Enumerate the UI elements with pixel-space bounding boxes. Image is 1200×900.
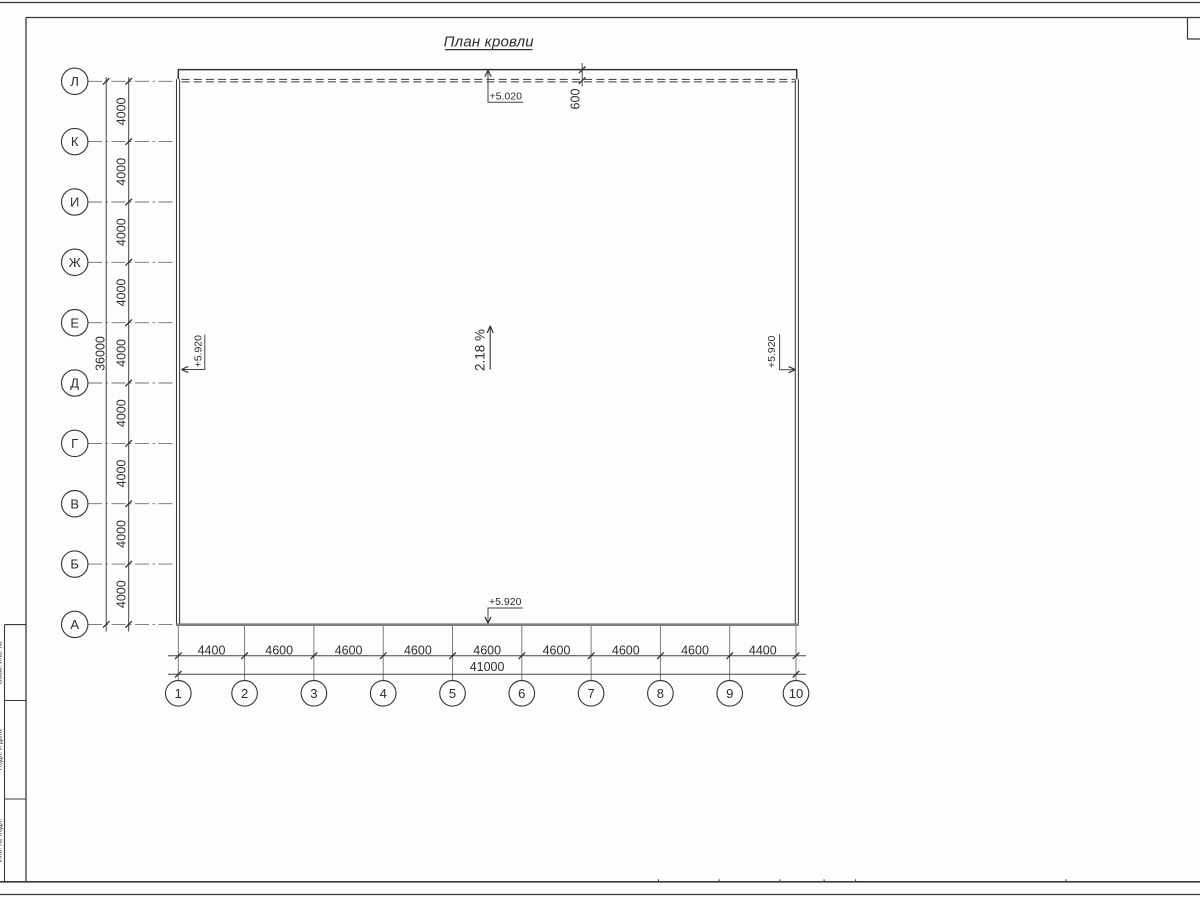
svg-text:7: 7 [587, 686, 594, 701]
svg-text:+5.920: +5.920 [192, 335, 204, 368]
svg-text:4600: 4600 [543, 643, 571, 657]
svg-text:6: 6 [518, 686, 525, 701]
svg-text:Б: Б [70, 557, 79, 572]
svg-text:4600: 4600 [473, 643, 501, 657]
svg-text:4000: 4000 [115, 520, 129, 548]
svg-text:4600: 4600 [265, 643, 293, 657]
svg-text:36000: 36000 [93, 336, 107, 371]
svg-text:И: И [70, 195, 79, 210]
svg-text:4000: 4000 [115, 339, 129, 367]
svg-text:А: А [70, 617, 79, 632]
svg-text:4600: 4600 [335, 643, 363, 657]
svg-text:Инв. № подл.: Инв. № подл. [0, 819, 3, 863]
svg-text:Взам. инв. №: Взам. инв. № [0, 641, 3, 684]
svg-text:Подп. и дата: Подп. и дата [0, 729, 3, 770]
svg-text:+5.920: +5.920 [766, 335, 778, 368]
svg-text:4000: 4000 [115, 158, 129, 186]
svg-text:2: 2 [241, 686, 248, 701]
svg-text:4400: 4400 [198, 643, 226, 657]
svg-text:8: 8 [657, 686, 664, 701]
svg-text:+5.020: +5.020 [490, 90, 523, 102]
svg-text:2.18 %: 2.18 % [473, 329, 488, 371]
svg-text:В: В [70, 496, 79, 511]
svg-text:К: К [71, 134, 79, 149]
svg-text:4600: 4600 [404, 643, 432, 657]
svg-text:4000: 4000 [115, 460, 129, 488]
svg-text:4600: 4600 [681, 643, 709, 657]
svg-text:Л: Л [70, 74, 79, 89]
svg-text:План кровли: План кровли [444, 33, 535, 50]
svg-text:4600: 4600 [612, 643, 640, 657]
svg-text:Д: Д [70, 376, 79, 391]
svg-text:Е: Е [70, 315, 79, 330]
svg-text:5: 5 [449, 686, 456, 701]
svg-text:4000: 4000 [115, 399, 129, 427]
svg-text:4: 4 [380, 686, 387, 701]
svg-text:+5.920: +5.920 [489, 596, 522, 608]
svg-text:41000: 41000 [470, 660, 505, 674]
svg-text:3: 3 [310, 686, 317, 701]
svg-text:4000: 4000 [115, 218, 129, 246]
svg-text:Ж: Ж [69, 255, 81, 270]
svg-text:4400: 4400 [749, 643, 777, 657]
svg-text:4000: 4000 [115, 279, 129, 307]
svg-text:600: 600 [569, 89, 583, 110]
svg-text:4000: 4000 [115, 580, 129, 608]
svg-text:Г: Г [71, 436, 78, 451]
svg-text:9: 9 [726, 686, 733, 701]
svg-text:10: 10 [789, 686, 803, 701]
svg-text:1: 1 [175, 686, 182, 701]
svg-text:4000: 4000 [115, 97, 129, 125]
